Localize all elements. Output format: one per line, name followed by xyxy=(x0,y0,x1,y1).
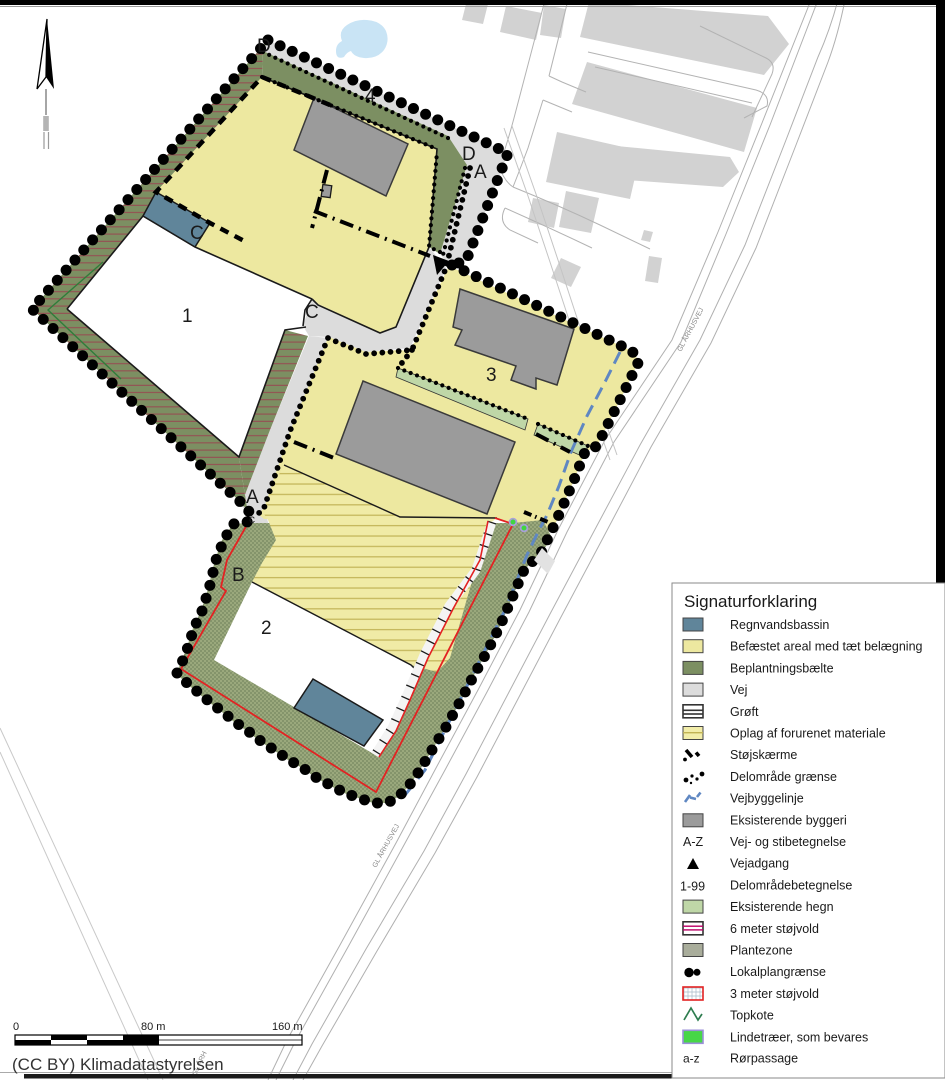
svg-text:Eksisterende byggeri: Eksisterende byggeri xyxy=(730,813,847,827)
svg-text:Vejadgang: Vejadgang xyxy=(730,857,789,871)
svg-text:Lindetræer, som bevares: Lindetræer, som bevares xyxy=(730,1030,868,1044)
svg-text:c: c xyxy=(249,512,255,526)
svg-text:Signaturforklaring: Signaturforklaring xyxy=(684,592,817,611)
svg-text:Regnvandsbassin: Regnvandsbassin xyxy=(730,618,829,632)
svg-text:Befæstet areal med tæt belægni: Befæstet areal med tæt belægning xyxy=(730,640,923,654)
svg-text:Beplantningsbælte: Beplantningsbælte xyxy=(730,661,834,675)
svg-text:160 m: 160 m xyxy=(272,1021,303,1033)
svg-text:1-99: 1-99 xyxy=(680,879,705,893)
svg-text:3 meter støjvold: 3 meter støjvold xyxy=(730,987,819,1001)
svg-text:B: B xyxy=(232,565,245,586)
svg-text:a-z: a-z xyxy=(683,1051,700,1065)
svg-text:Støjskærme: Støjskærme xyxy=(730,748,797,762)
svg-text:Rørpassage: Rørpassage xyxy=(730,1051,798,1065)
svg-text:Delområdebetegnelse: Delområdebetegnelse xyxy=(730,878,852,892)
svg-text:2: 2 xyxy=(261,618,272,639)
svg-text:80 m: 80 m xyxy=(141,1021,165,1033)
svg-text:Grøft: Grøft xyxy=(730,705,759,719)
svg-text:6 meter støjvold: 6 meter støjvold xyxy=(730,922,819,936)
svg-text:Vejbyggelinje: Vejbyggelinje xyxy=(730,792,804,806)
svg-text:Lokalplangrænse: Lokalplangrænse xyxy=(730,965,826,979)
svg-text:Oplag af forurenet materiale: Oplag af forurenet materiale xyxy=(730,727,886,741)
svg-text:4: 4 xyxy=(365,86,376,107)
svg-text:C: C xyxy=(305,302,319,323)
svg-text:3: 3 xyxy=(486,365,497,386)
svg-text:(CC BY) Klimadatastyrelsen: (CC BY) Klimadatastyrelsen xyxy=(12,1055,224,1074)
svg-text:Eksisterende hegn: Eksisterende hegn xyxy=(730,900,834,914)
svg-text:Vej- og stibetegnelse: Vej- og stibetegnelse xyxy=(730,835,846,849)
svg-text:A-Z: A-Z xyxy=(683,835,704,849)
svg-text:1: 1 xyxy=(182,306,193,327)
svg-text:Vej: Vej xyxy=(730,683,747,697)
svg-text:Topkote: Topkote xyxy=(730,1009,774,1023)
svg-text:Delområde grænse: Delområde grænse xyxy=(730,770,837,784)
svg-text:A: A xyxy=(474,162,487,183)
svg-text:A: A xyxy=(246,487,259,508)
svg-text:D: D xyxy=(257,36,271,57)
svg-text:Plantezone: Plantezone xyxy=(730,944,793,958)
svg-text:C: C xyxy=(190,223,204,244)
svg-text:0: 0 xyxy=(13,1021,19,1033)
